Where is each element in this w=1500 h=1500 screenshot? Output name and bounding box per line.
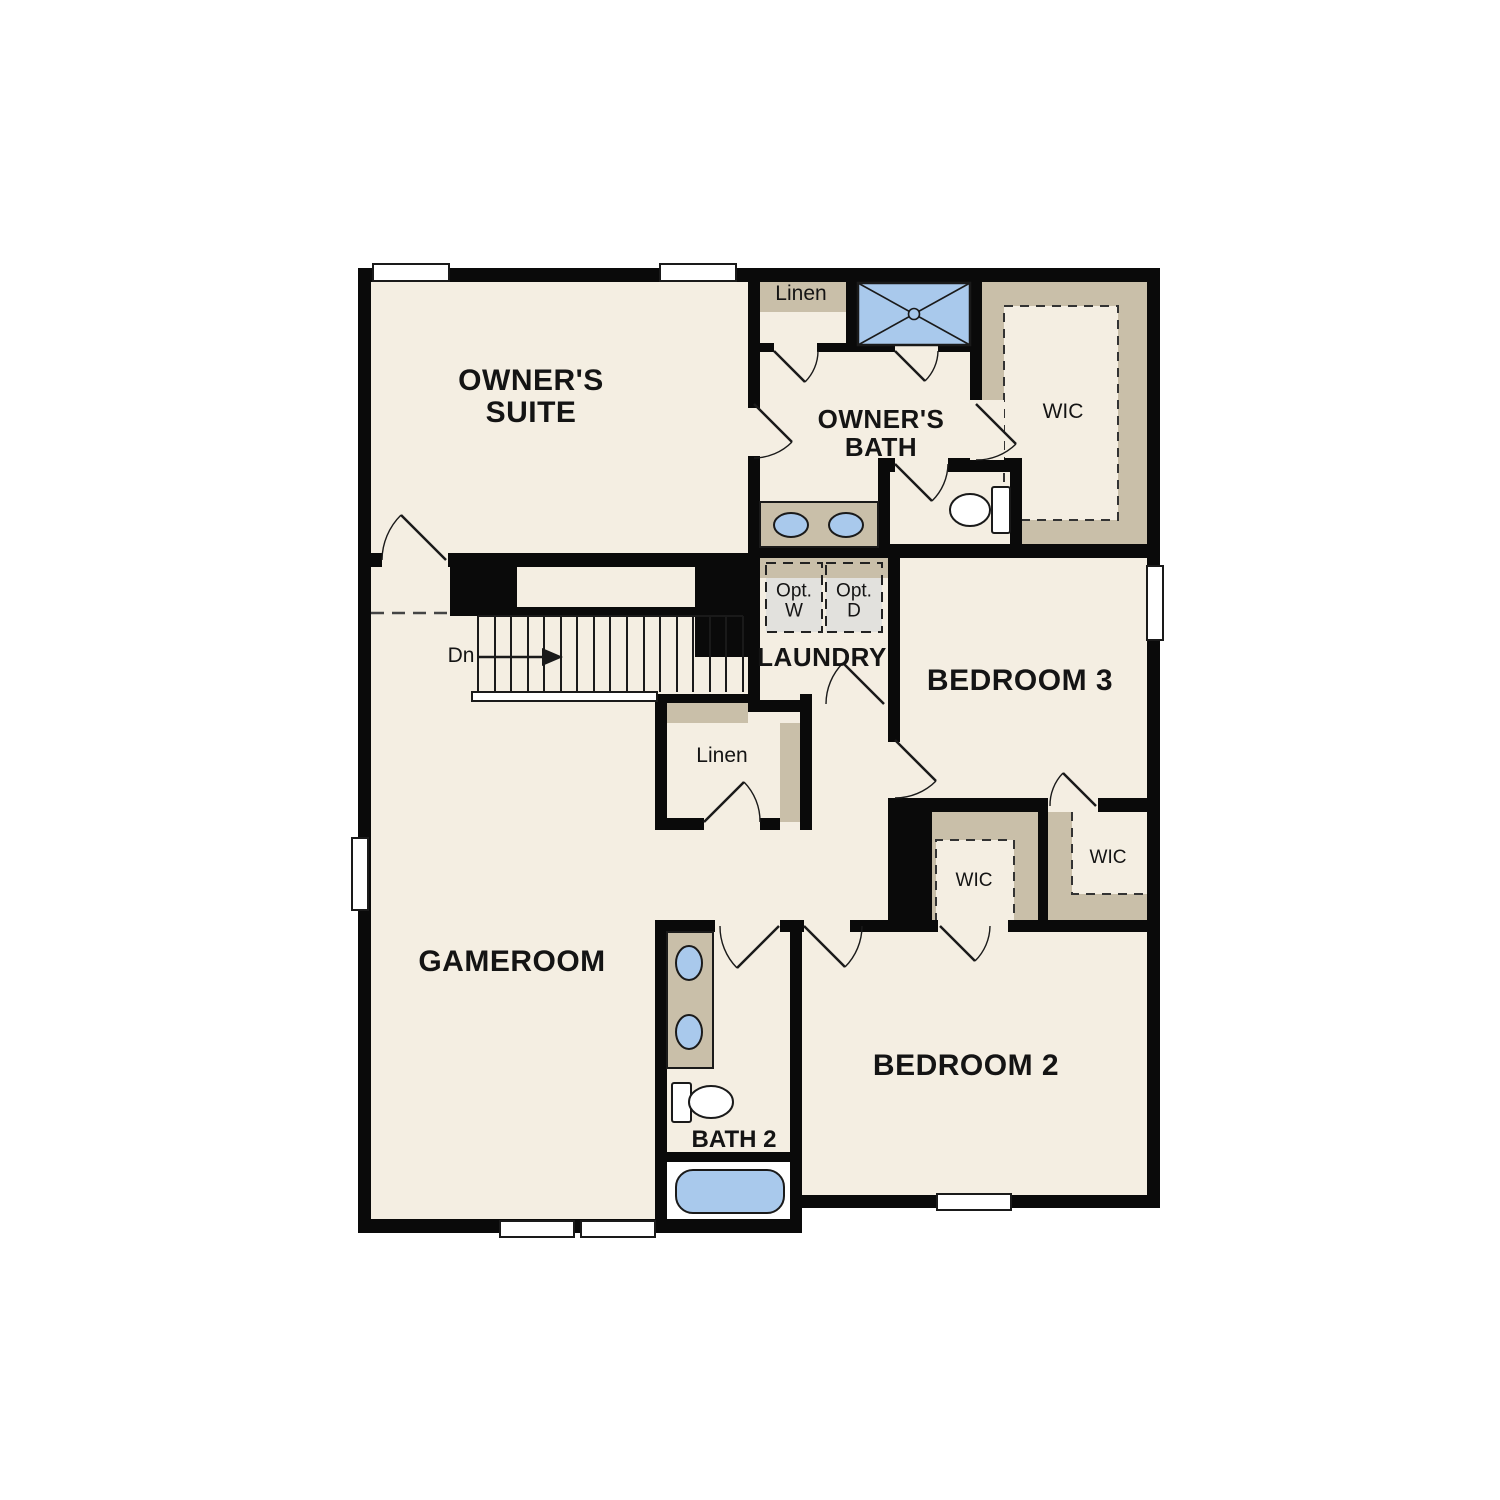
- sink-icon: [829, 513, 863, 537]
- closet-label-linen-top: Linen: [775, 283, 826, 305]
- window: [937, 1194, 1011, 1210]
- room-label-owners-bath: OWNER'S BATH: [818, 406, 945, 462]
- sink-icon: [774, 513, 808, 537]
- room-label-bedroom2: BEDROOM 2: [873, 1050, 1059, 1082]
- stairs-down-label: Dn: [448, 645, 475, 667]
- window: [352, 838, 368, 910]
- owners-vanity: [760, 502, 878, 547]
- room-label-bath2: BATH 2: [692, 1127, 777, 1153]
- closet-label-wic-bedroom3: WIC: [1090, 848, 1127, 868]
- closet-label-owners-wic: WIC: [1043, 401, 1084, 423]
- optional-dryer-label: Opt. D: [836, 582, 872, 623]
- window: [1147, 566, 1163, 640]
- window: [581, 1221, 655, 1237]
- window: [660, 264, 736, 281]
- room-label-owners-suite: OWNER'S SUITE: [458, 365, 604, 429]
- floor-plan-drawing: [0, 0, 1500, 1500]
- closet-label-wic-bedroom2: WIC: [956, 871, 993, 891]
- stair-railing: [472, 692, 657, 701]
- room-label-laundry: LAUNDRY: [757, 644, 887, 672]
- room-label-bedroom3: BEDROOM 3: [927, 665, 1113, 697]
- floor-plan: OWNER'S SUITE Linen OWNER'S BATH WIC Opt…: [0, 0, 1500, 1500]
- room-label-gameroom: GAMEROOM: [418, 946, 605, 978]
- bath2-vanity: [667, 932, 713, 1068]
- wic-door-opening: [970, 400, 1004, 460]
- shower-icon: [858, 283, 970, 345]
- closet-label-linen-hall: Linen: [696, 745, 747, 767]
- sink-icon: [676, 946, 702, 980]
- window: [373, 264, 449, 281]
- optional-washer-label: Opt. W: [776, 582, 812, 623]
- bathtub-icon: [667, 1162, 790, 1219]
- window: [500, 1221, 574, 1237]
- sink-icon: [676, 1015, 702, 1049]
